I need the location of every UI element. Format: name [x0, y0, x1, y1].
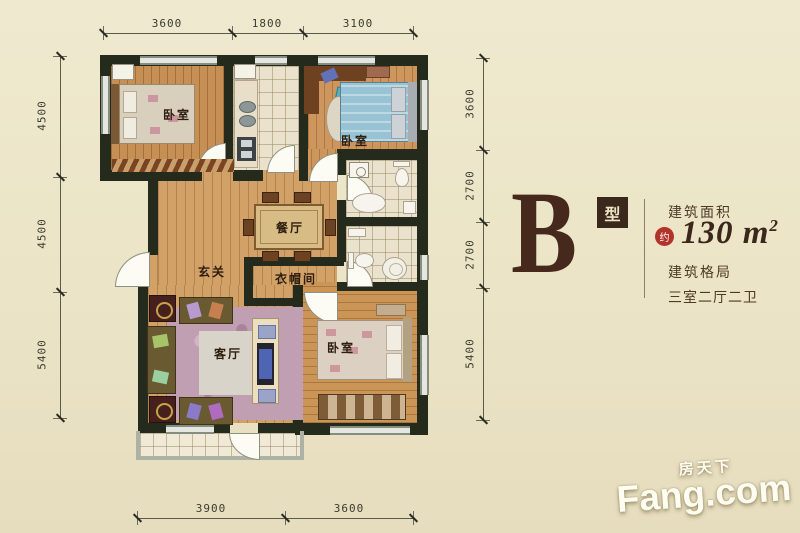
toilet-bowl [355, 253, 374, 268]
tv-stand [252, 318, 279, 404]
balcony-wall-left [136, 431, 140, 459]
dining-label: 餐厅 [265, 219, 315, 236]
pillow [386, 353, 402, 379]
fang-watermark: 房天下 Fang.com [614, 455, 792, 517]
bedroom1-nightstand [112, 64, 134, 80]
cloakroom-label: 衣帽间 [266, 270, 326, 287]
armchair [179, 297, 233, 324]
living-label: 客厅 [203, 345, 253, 362]
balcony-wall-right [300, 431, 304, 459]
bedroom2-dresser [366, 66, 390, 78]
dim-top-2: 1800 [245, 17, 289, 30]
bath1-corner-unit [403, 201, 416, 214]
bedroom2-label: 卧室 [330, 132, 380, 149]
sofa [147, 326, 176, 394]
window-bedroom3-right [420, 335, 429, 395]
dining-chair [325, 219, 336, 236]
bath1-sink [352, 193, 386, 213]
bath2-cabinet [348, 228, 366, 237]
watermark-en: Fang.com [616, 470, 793, 517]
dim-line [103, 33, 413, 34]
washing-machine [349, 162, 369, 178]
floorplan-page: 3600 1800 3100 4500 4500 5400 3600 2700 … [0, 0, 800, 533]
layout-value: 三室二厅二卫 [668, 287, 758, 307]
side-table [149, 295, 176, 322]
bedroom2-headboard [408, 82, 417, 142]
dim-right-2: 2700 [464, 164, 477, 208]
dining-chair [294, 251, 311, 262]
dining-chair [262, 192, 279, 203]
pillow [123, 117, 137, 139]
bedroom3-dresser [376, 304, 406, 316]
bedroom3-label: 卧室 [316, 339, 366, 356]
dim-right-1: 3600 [464, 82, 477, 126]
window-living-bottom [166, 425, 214, 434]
sink-bowl [239, 115, 256, 127]
bedroom3-wardrobe [318, 394, 406, 420]
stove [237, 137, 256, 161]
toilet-bowl [395, 168, 409, 187]
pillow [386, 325, 402, 351]
window-bedroom1-top [140, 56, 217, 65]
window-bedroom2-top [318, 56, 375, 65]
dim-left-3: 5400 [36, 333, 49, 377]
armchair [179, 397, 233, 425]
panel-divider [644, 199, 645, 298]
toilet-tank [348, 252, 354, 269]
balcony-floor [140, 433, 300, 457]
bedroom3-headboard [403, 318, 412, 382]
kitchen-counter [234, 80, 258, 168]
dim-right-3: 2700 [464, 233, 477, 277]
entry-label: 玄关 [187, 263, 237, 280]
side-table [149, 396, 176, 423]
dim-top-1: 3600 [145, 17, 189, 30]
dining-chair [294, 192, 311, 203]
bedroom1-rug [112, 159, 234, 172]
tv [257, 343, 274, 385]
window-bedroom1-left [101, 76, 110, 134]
window-bedroom3-bottom [330, 426, 410, 435]
dining-chair [243, 219, 254, 236]
dim-right-4: 5400 [464, 332, 477, 376]
area-value: 130 m2 [681, 215, 779, 252]
entry-door [115, 252, 150, 287]
sink-bowl [239, 101, 256, 113]
pillow [391, 87, 406, 112]
balcony-wall-bottom [136, 456, 304, 460]
dim-bottom-1: 3900 [189, 502, 233, 515]
window-kitchen [255, 56, 287, 65]
window-bath2 [420, 255, 429, 280]
dim-top-3: 3100 [336, 17, 380, 30]
bath2-sink [382, 257, 407, 280]
dim-bottom-2: 3600 [327, 502, 371, 515]
bedroom1-label: 卧室 [152, 106, 202, 123]
toilet-tank [393, 161, 410, 167]
dim-left-2: 4500 [36, 212, 49, 256]
unit-type-letter: B [511, 174, 577, 292]
approx-badge: 约 [655, 227, 674, 246]
bedroom1-headboard [111, 84, 119, 144]
window-bedroom2-right [420, 80, 429, 130]
layout-label: 建筑格局 [668, 262, 732, 282]
dim-left-1: 4500 [36, 94, 49, 138]
pillow [391, 114, 406, 139]
kitchen-cabinet [234, 64, 256, 79]
pillow [123, 91, 137, 113]
unit-type-suffix: 型 [597, 197, 628, 228]
dining-chair [262, 251, 279, 262]
